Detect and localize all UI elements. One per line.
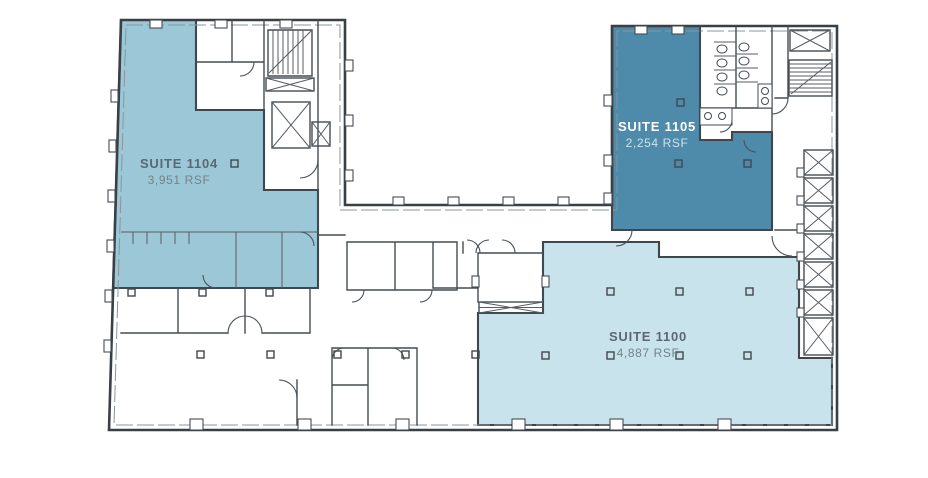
suite-1100-label: SUITE 1100 xyxy=(609,329,687,344)
suite-1104-region[interactable] xyxy=(113,20,318,288)
elevator-shaft xyxy=(272,102,310,148)
suite-1104-label: SUITE 1104 xyxy=(140,156,218,171)
elevator-bank xyxy=(797,150,833,355)
restroom-fixtures xyxy=(700,42,772,125)
elevator-shaft xyxy=(266,78,314,91)
elevator-shaft xyxy=(479,302,543,313)
floor-plan-canvas: SUITE 1104 3,951 RSF SUITE 1105 2,254 RS… xyxy=(0,0,928,478)
floor-plan-page: SUITE 1104 3,951 RSF SUITE 1105 2,254 RS… xyxy=(0,0,928,478)
elevator-shaft xyxy=(312,122,330,146)
suite-1105-label: SUITE 1105 xyxy=(618,119,696,134)
suite-1105-rsf: 2,254 RSF xyxy=(626,136,689,150)
suite-1104-rsf: 3,951 RSF xyxy=(148,173,211,187)
elevator-shaft xyxy=(790,30,830,51)
suite-1100-rsf: 4,887 RSF xyxy=(617,346,680,360)
